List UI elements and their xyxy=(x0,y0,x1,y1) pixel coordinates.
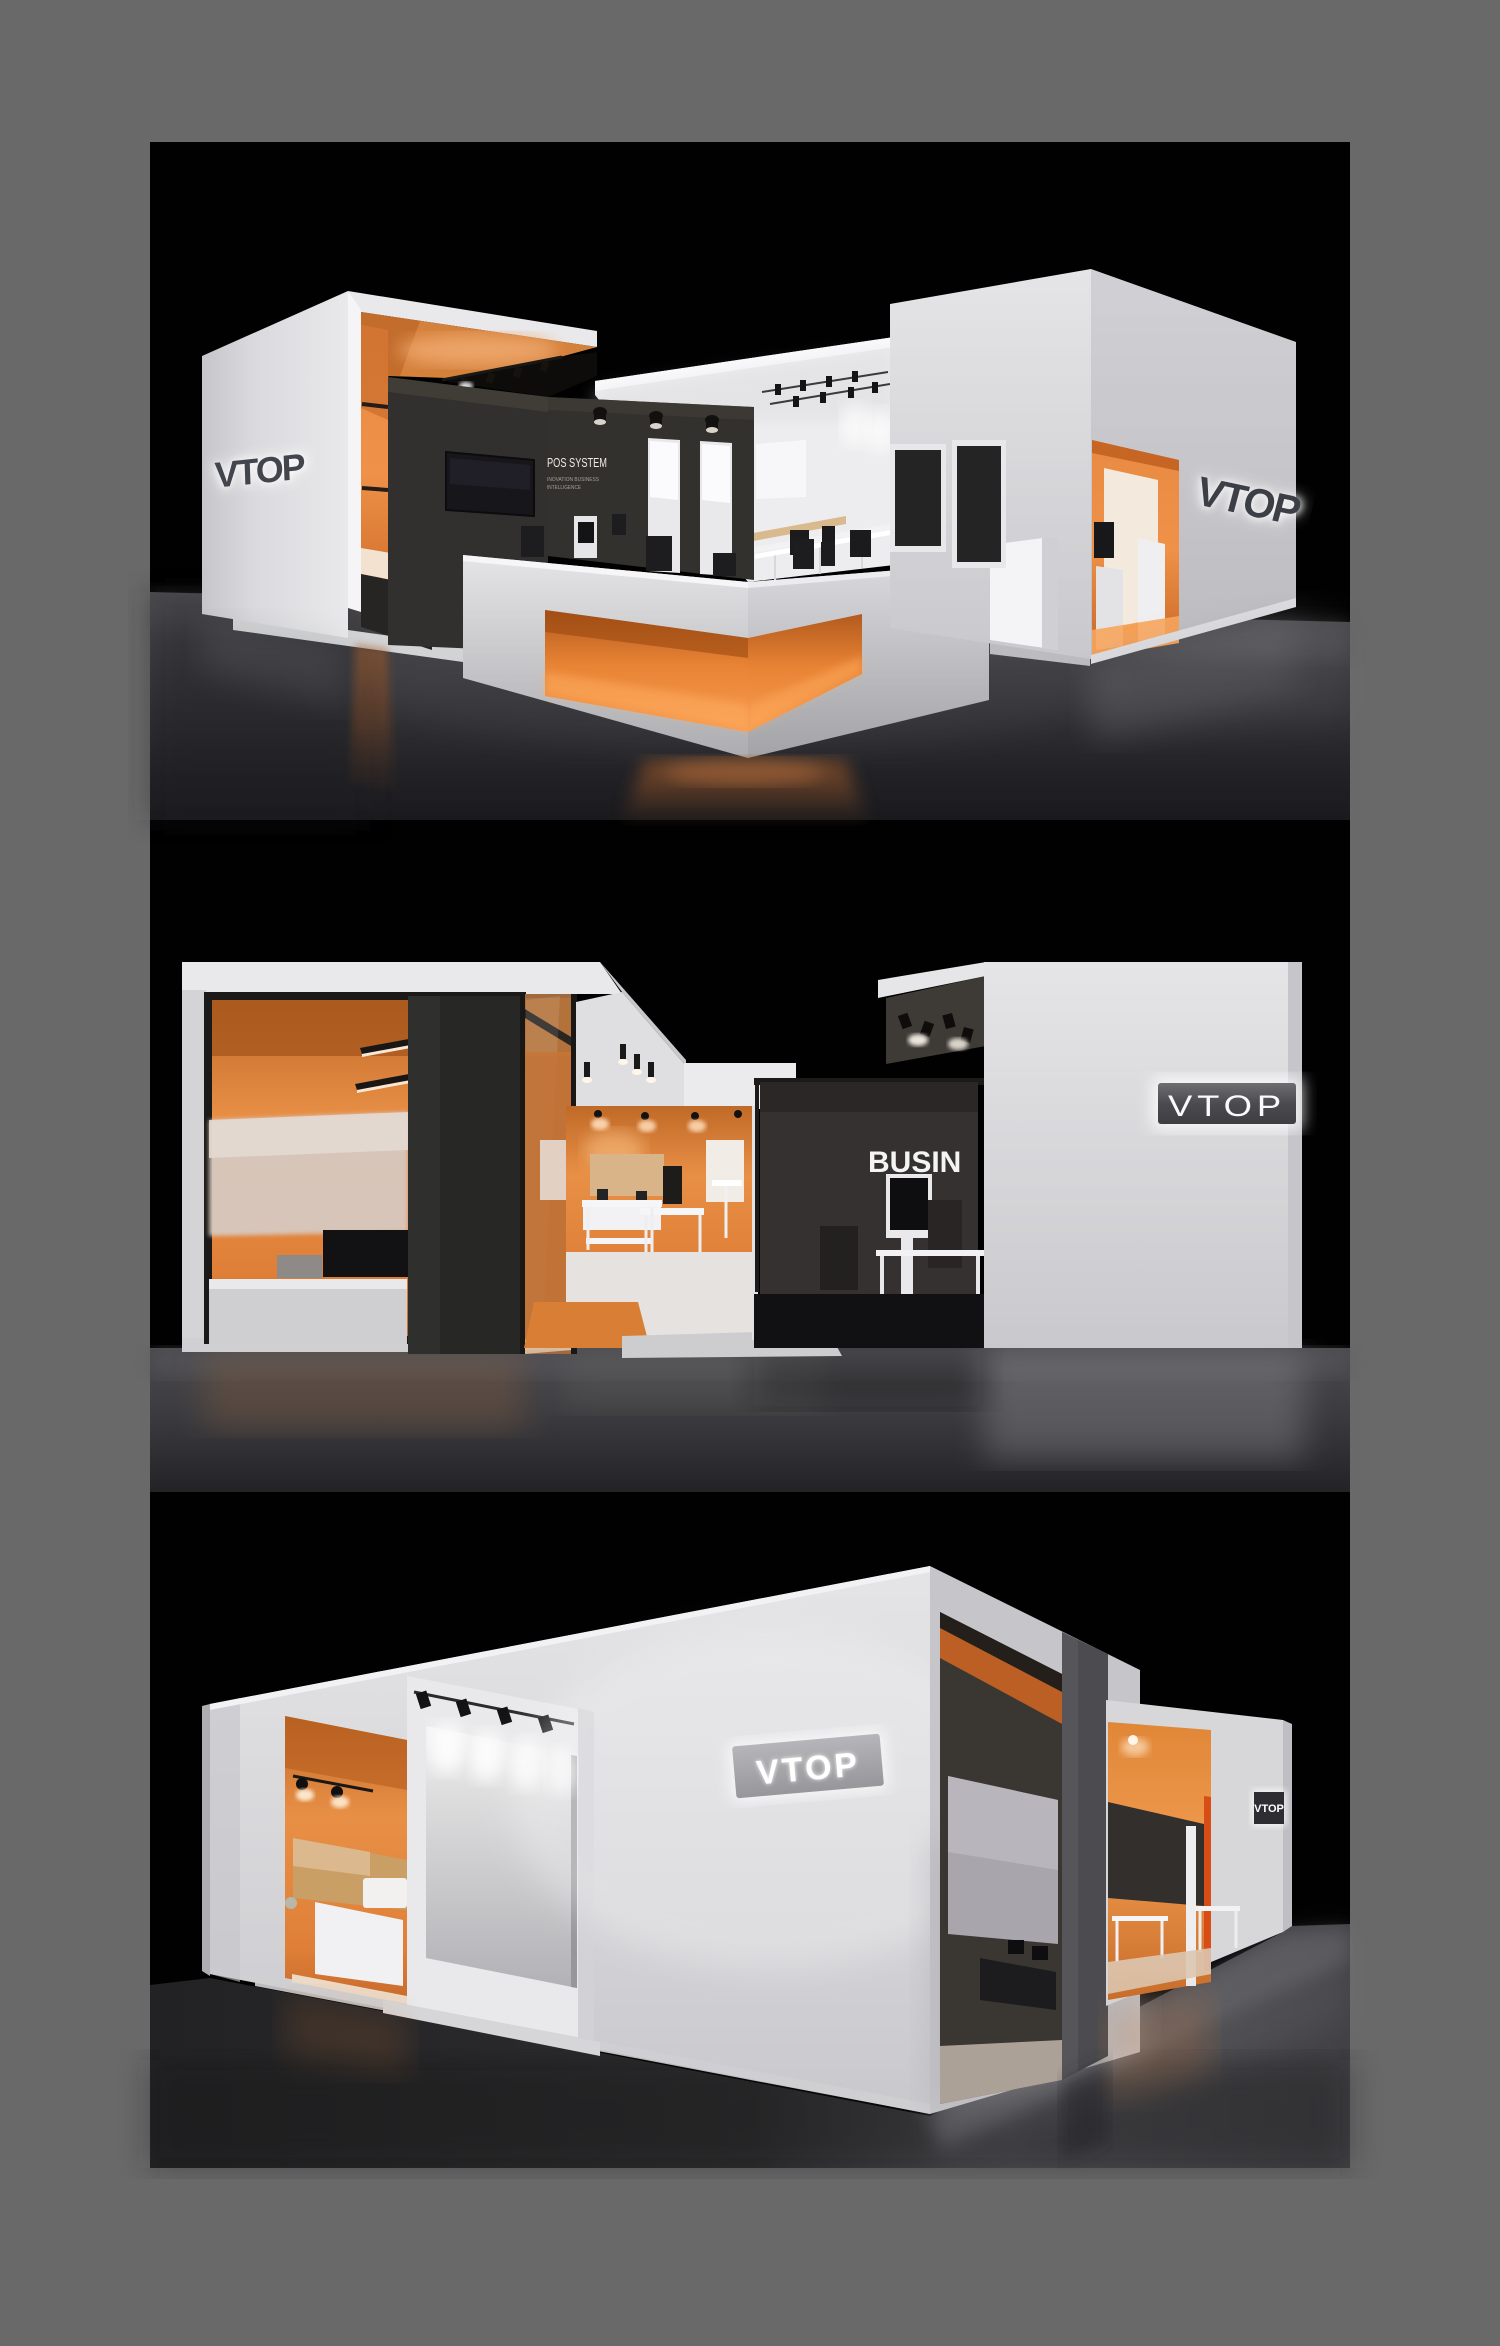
svg-text:INTELLIGENCE: INTELLIGENCE xyxy=(547,485,581,491)
svg-text:INOVATION BUSINESS: INOVATION BUSINESS xyxy=(547,477,599,483)
svg-text:VTOP: VTOP xyxy=(1168,1090,1286,1123)
svg-text:POS SYSTEM: POS SYSTEM xyxy=(547,455,607,470)
svg-text:VTOP: VTOP xyxy=(1254,1803,1284,1815)
